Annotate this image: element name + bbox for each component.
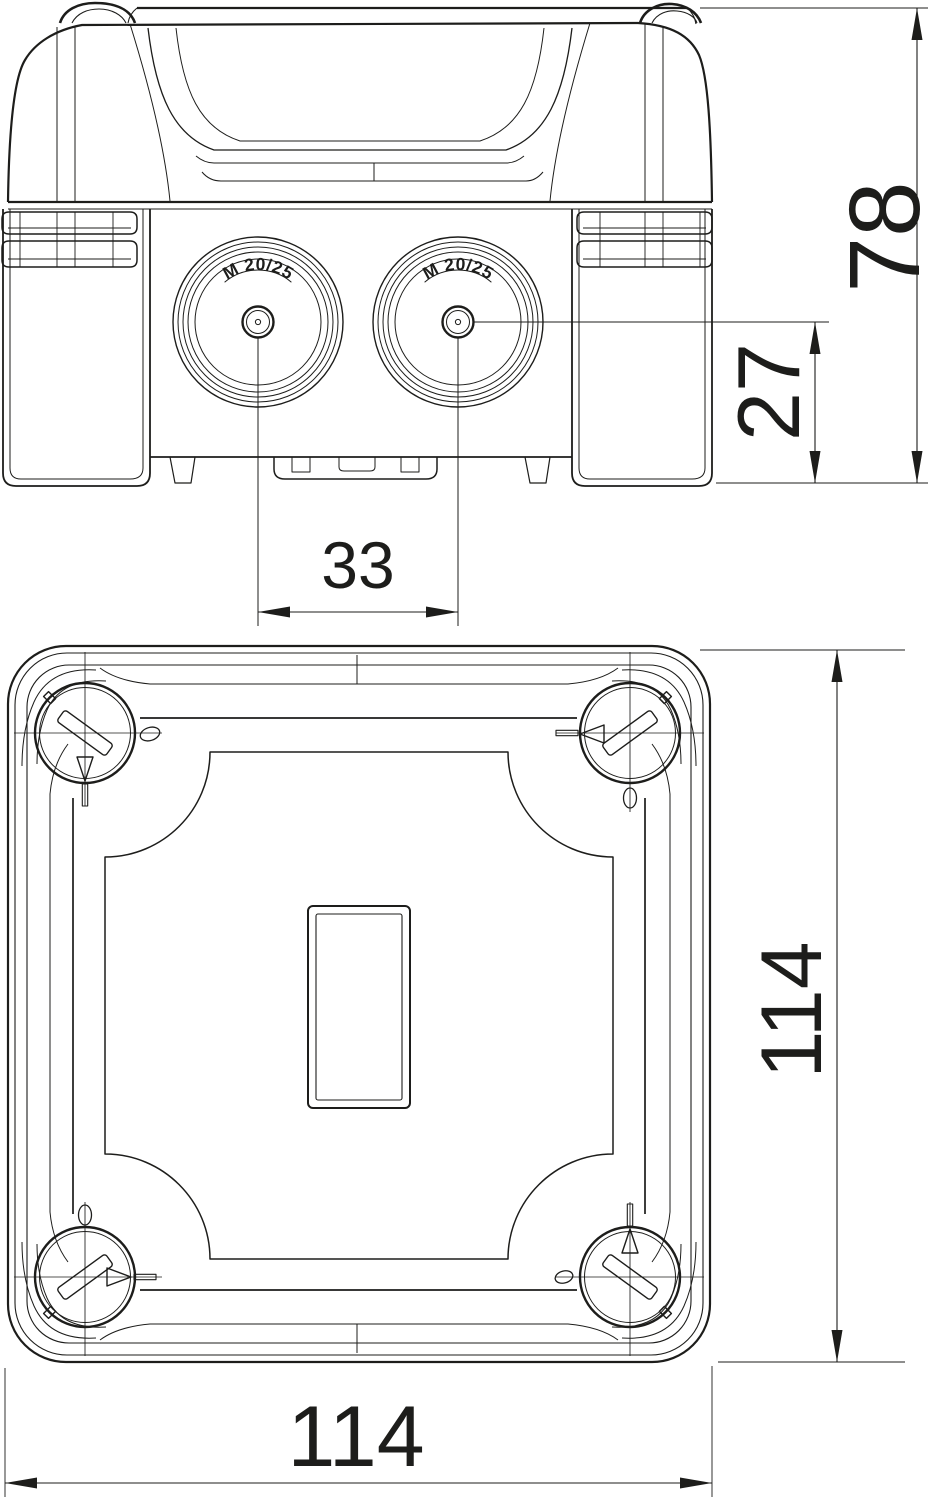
lid-mount-lugs bbox=[60, 3, 701, 23]
dim-height-value: 78 bbox=[829, 181, 934, 292]
plan-view-dimensions: 114 114 bbox=[5, 650, 905, 1497]
body-pods-inner bbox=[10, 209, 705, 479]
inner-lid-panel bbox=[105, 752, 613, 1259]
gland-nipple bbox=[243, 307, 274, 338]
gland-nipple bbox=[443, 307, 474, 338]
center-window bbox=[308, 906, 410, 1108]
dim-width-arrow-right bbox=[680, 1478, 712, 1489]
lid-mount-lugs-inner bbox=[72, 9, 697, 23]
gland-size-label-left: M 20/25 bbox=[219, 254, 297, 284]
lid-recess-outer bbox=[148, 28, 572, 150]
center-window-inner bbox=[316, 914, 402, 1100]
dim-depth-value: 114 bbox=[744, 941, 840, 1078]
gland-size-label-right: M 20/25 bbox=[419, 254, 497, 284]
lid-seam-lines bbox=[73, 718, 645, 1290]
dim-depth-arrow-up bbox=[832, 650, 843, 682]
enclosure-outline bbox=[8, 646, 710, 1362]
mounting-tab-inner bbox=[292, 457, 419, 472]
dim-height-arrow-up bbox=[912, 8, 923, 40]
seal-eyelet bbox=[138, 725, 161, 744]
dim-entry-height-value: 27 bbox=[719, 343, 818, 441]
lid-facet-lines bbox=[57, 23, 663, 201]
dim-width-arrow-left bbox=[5, 1478, 37, 1489]
lid-recess-inner bbox=[176, 28, 544, 181]
lid-outline bbox=[8, 8, 712, 202]
indicator-bars bbox=[82, 730, 632, 1279]
lid-outline-secondary bbox=[8, 8, 712, 209]
enclosure-outline-inner bbox=[15, 653, 703, 1355]
body-pods bbox=[3, 209, 712, 486]
gland-nipple-inner bbox=[447, 311, 470, 334]
mounting-tab bbox=[274, 457, 437, 479]
screw-center-axes bbox=[14, 652, 704, 1356]
gland-nipple-inner bbox=[247, 311, 270, 334]
junction-box-dimension-drawing: M 20/25 M 20/25 78 27 bbox=[0, 0, 934, 1500]
dim-depth-arrow-down bbox=[832, 1330, 843, 1362]
dim-height-arrow-down bbox=[912, 451, 923, 483]
dim-spacing-arrow-left bbox=[258, 607, 290, 618]
lid-edge-band-details bbox=[50, 655, 670, 1353]
dim-spacing-arrow-right bbox=[426, 607, 458, 618]
dim-entry-height-arrow-down bbox=[810, 451, 821, 483]
dim-width-value: 114 bbox=[287, 1389, 424, 1485]
side-view: M 20/25 M 20/25 bbox=[2, 3, 829, 626]
latch-slat-details bbox=[8, 212, 706, 267]
plan-view bbox=[8, 646, 710, 1362]
dimension-drawing-page: M 20/25 M 20/25 78 27 bbox=[0, 0, 934, 1500]
indicator-triangles bbox=[77, 725, 638, 1286]
gland-center-point bbox=[255, 319, 260, 324]
dim-spacing-value: 33 bbox=[321, 528, 394, 602]
side-view-dimensions: 78 27 33 bbox=[258, 8, 934, 618]
lid-edge-band bbox=[27, 665, 691, 1343]
gland-center-point bbox=[455, 319, 460, 324]
